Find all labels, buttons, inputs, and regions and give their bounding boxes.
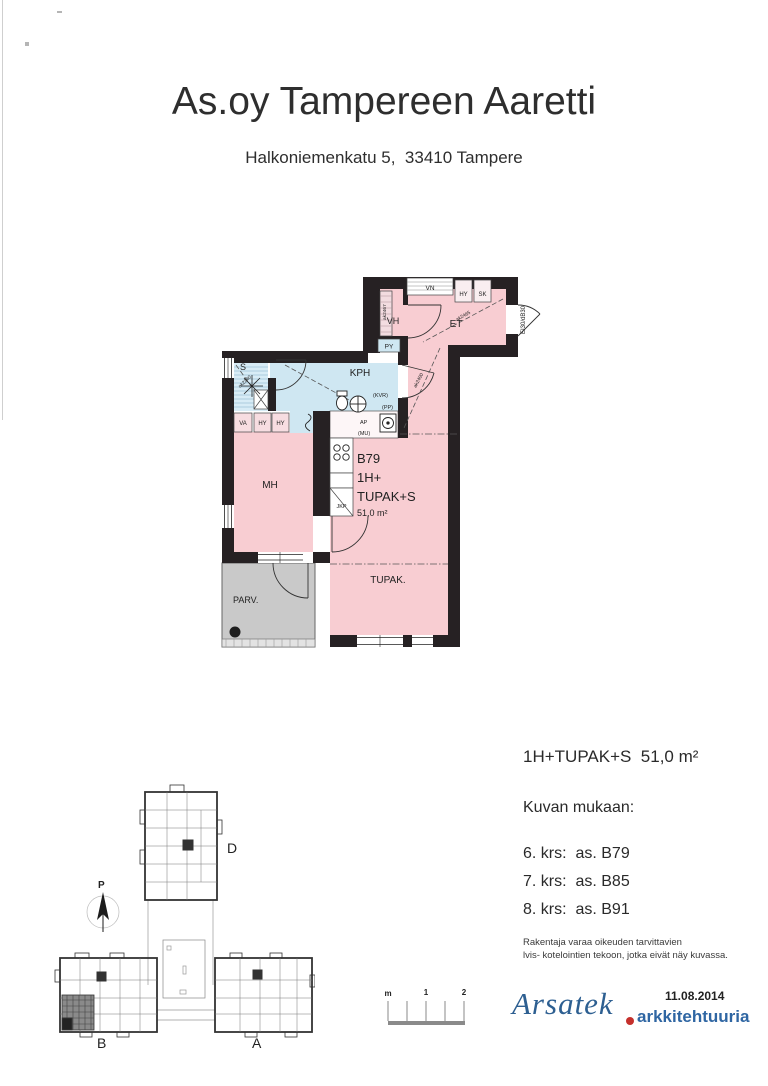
floor-plan: ak2465 ak2400 ak2240 ak2467 S KPH VH ET … <box>210 248 560 688</box>
scan-artifact <box>25 42 29 46</box>
floor-list-item: 6. krs: as. B79 <box>523 840 630 868</box>
closet-label-sk: SK <box>478 292 486 298</box>
courtyard-lines <box>148 900 215 1020</box>
building-a <box>215 953 315 1037</box>
highlighted-apartment <box>62 995 94 1030</box>
drawing-date: 11.08.2014 <box>665 989 724 1003</box>
building-label-d: D <box>227 840 237 856</box>
scanned-floorplan-page: As.oy Tampereen Aaretti Halkoniemenkatu … <box>0 0 768 1086</box>
room-label-et: ET <box>450 319 463 330</box>
label-mu: (MU) <box>358 431 370 437</box>
site-labels: D P B A <box>97 840 262 1050</box>
door-rating-label: EI30/dB30 <box>521 305 527 334</box>
room-label-vh: VH <box>387 316 400 326</box>
floor-list-item: 7. krs: as. B85 <box>523 868 630 896</box>
scale-bar: m 1 2 <box>383 983 473 1033</box>
site-plan: D P B A <box>45 780 315 1050</box>
closet-label-hy2: HY <box>276 421 284 427</box>
room-label-tupak: TUPAK. <box>370 575 405 586</box>
toilet-icon <box>337 391 348 410</box>
apartment-id: B79 <box>357 451 380 466</box>
scale-label-1: 1 <box>424 988 429 997</box>
scale-label-2: 2 <box>462 988 467 997</box>
room-label-parv: PARV. <box>233 595 258 605</box>
sink-icon <box>350 396 366 412</box>
apartment-type1: 1H+ <box>357 470 381 485</box>
balcony-drain <box>230 627 241 638</box>
closet-label-hy-entry: HY <box>459 292 467 298</box>
architect-logo: Arsatek <box>512 986 614 1022</box>
closet-label-hy1: HY <box>258 421 266 427</box>
floor-list: 6. krs: as. B79 7. krs: as. B85 8. krs: … <box>523 840 630 924</box>
building-b <box>55 953 157 1037</box>
scale-label-0: m <box>384 989 391 998</box>
page-title: As.oy Tampereen Aaretti <box>0 80 768 124</box>
disclaimer: Rakentaja varaa oikeuden tarvittavien lv… <box>523 936 728 962</box>
closet-label-py: PY <box>385 344 394 351</box>
closet-label-jkp: JKP <box>336 504 346 510</box>
disclaimer-line: Rakentaja varaa oikeuden tarvittavien <box>523 936 728 949</box>
label-pp: (PP) <box>382 405 393 411</box>
legend-heading: Kuvan mukaan: <box>523 799 634 817</box>
floor-list-item: 8. krs: as. B91 <box>523 896 630 924</box>
north-label: P <box>98 880 105 891</box>
apartment-type2: TUPAK+S <box>357 489 416 504</box>
label-ap: AP <box>360 420 368 426</box>
apartment-area: 51,0 m² <box>357 508 388 518</box>
scan-artifact <box>2 0 3 420</box>
closet-label-va: VA <box>239 421 247 427</box>
room-label-kph: KPH <box>350 368 371 379</box>
architect-tagline: arkkitehtuuria <box>637 1007 749 1027</box>
building-label-b: B <box>97 1035 106 1050</box>
building-label-a: A <box>252 1035 262 1050</box>
page-address: Halkoniemenkatu 5, 33410 Tampere <box>0 148 768 168</box>
disclaimer-line: lvis- kotelointien tekoon, jotka eivät n… <box>523 949 728 962</box>
scan-artifact <box>57 11 62 13</box>
washer-icon <box>380 414 396 432</box>
label-kvr: (KVR) <box>373 393 388 399</box>
room-label-sauna: S <box>240 362 246 372</box>
room-label-mh: MH <box>262 480 278 491</box>
building-d <box>140 785 222 900</box>
closet-label-vn: VN <box>425 285 434 292</box>
north-arrow <box>87 892 119 932</box>
apartment-summary: 1H+TUPAK+S 51,0 m² <box>523 747 698 767</box>
logo-dot-icon <box>626 1017 634 1025</box>
